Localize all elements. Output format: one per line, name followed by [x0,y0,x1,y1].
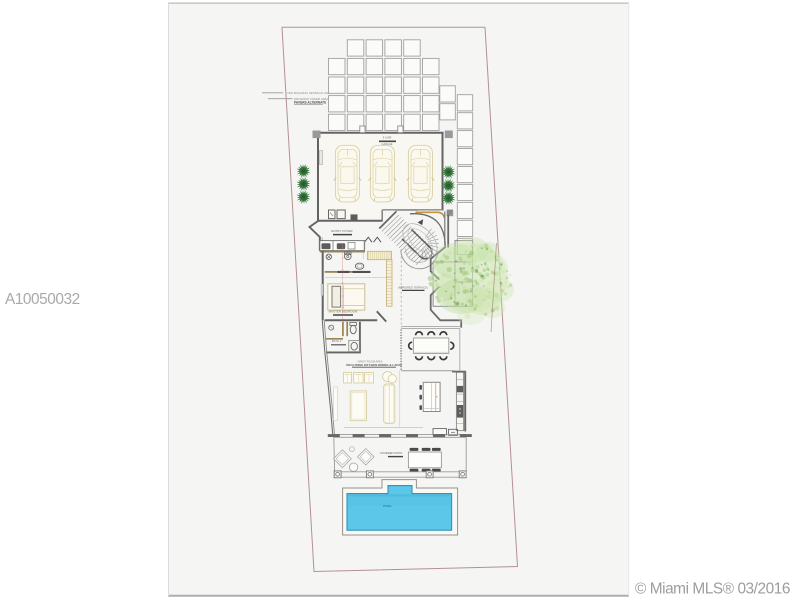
svg-text:BATH 2: BATH 2 [332,339,342,343]
svg-text:POOL: POOL [383,504,392,508]
svg-text:MIN BUILDING SETBACK LINE: MIN BUILDING SETBACK LINE [288,91,331,95]
svg-text:3 CAR: 3 CAR [383,136,393,140]
svg-text:INCLUDING KITCHEN DINING & LAN: INCLUDING KITCHEN DINING & LANAI [346,363,401,367]
svg-text:A10050032: A10050032 [5,291,80,308]
svg-text:PAVERS ALTERNATE: PAVERS ALTERNATE [294,100,326,104]
svg-text:ENTRY FOYER: ENTRY FOYER [331,229,353,233]
svg-text:© Miami MLS® 03/2016: © Miami MLS® 03/2016 [635,581,790,598]
svg-text:COVERED PATIO: COVERED PATIO [380,451,403,455]
svg-text:MASTER BEDROOM: MASTER BEDROOM [329,310,358,314]
